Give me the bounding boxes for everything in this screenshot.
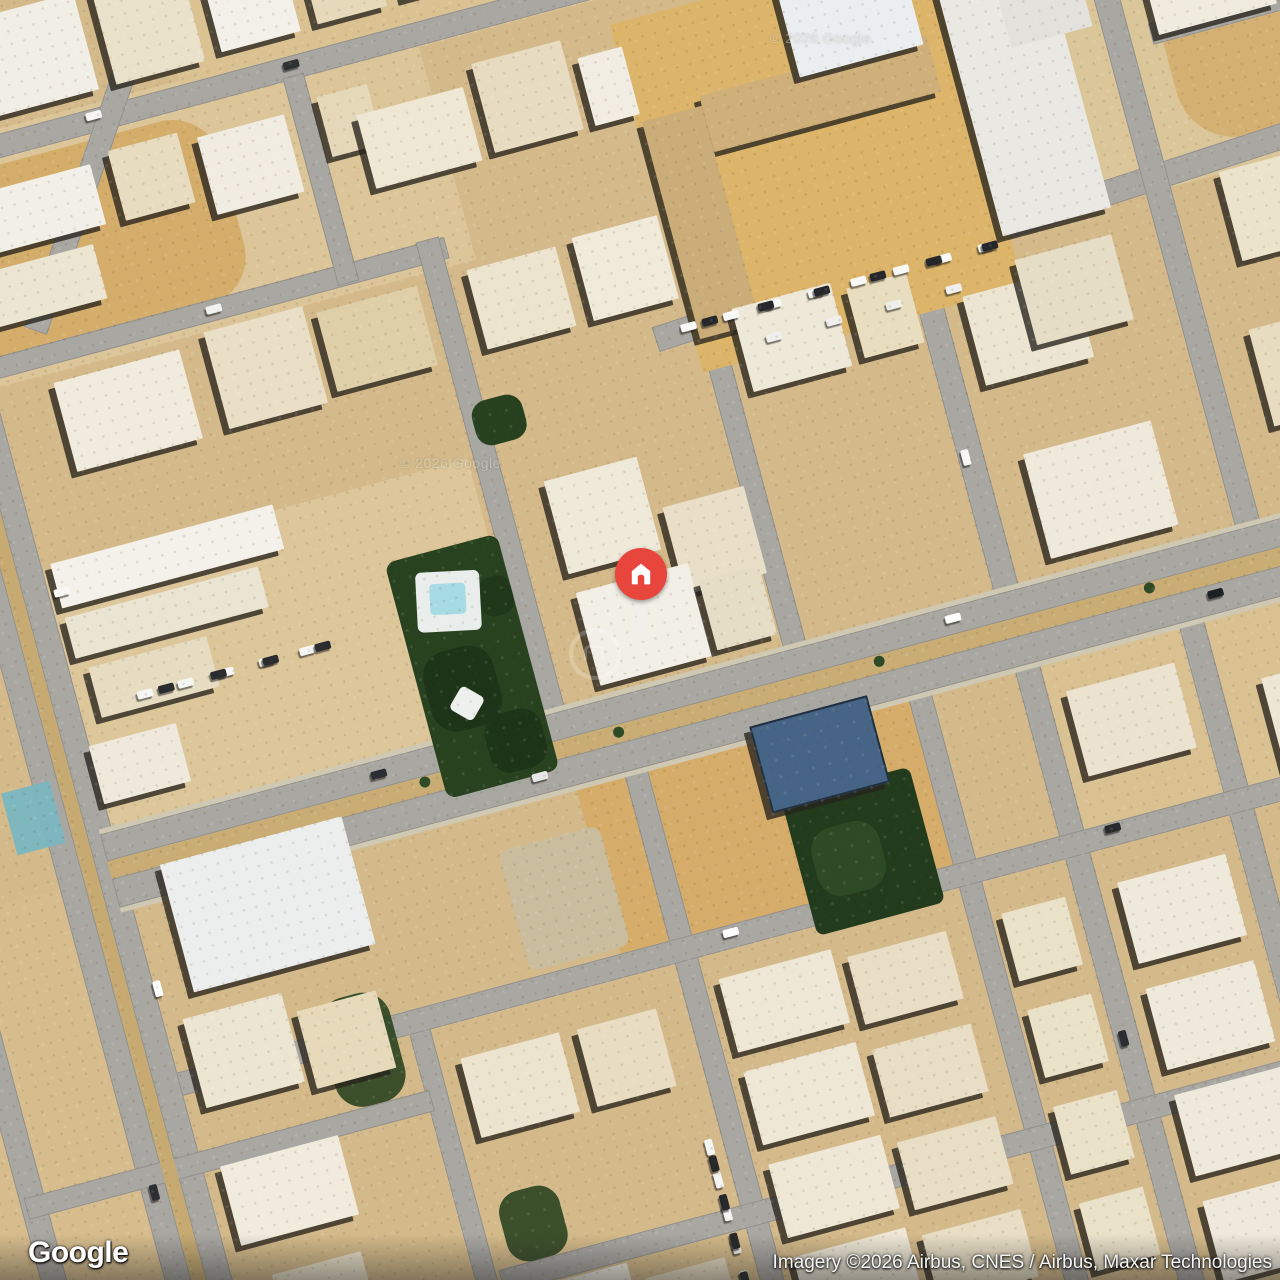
building [1023, 420, 1178, 558]
car [729, 1232, 741, 1250]
building [1001, 897, 1083, 982]
car [704, 1138, 716, 1156]
building [1174, 1066, 1280, 1176]
building [1027, 993, 1109, 1078]
building [1117, 854, 1247, 964]
building [1248, 301, 1280, 427]
building [897, 1116, 1014, 1210]
satellite-imagery-canvas[interactable] [0, 0, 1280, 1280]
imagery-attribution: Imagery ©2026 Airbus, CNES / Airbus, Max… [773, 1252, 1272, 1274]
car [718, 1194, 730, 1212]
building [183, 993, 305, 1108]
satellite-map-viewport[interactable]: © 2026 Google © 2026 Google Google Image… [0, 0, 1280, 1280]
building [460, 1032, 580, 1138]
building [316, 286, 438, 392]
map-pin[interactable] [615, 548, 667, 600]
building [572, 215, 679, 321]
car [739, 1271, 751, 1280]
building [847, 931, 964, 1025]
building [743, 1042, 875, 1145]
building [577, 1008, 677, 1106]
building [471, 40, 584, 153]
building [54, 349, 203, 472]
building [272, 1251, 385, 1280]
building [645, 1257, 745, 1280]
building [872, 1024, 989, 1118]
building [718, 949, 850, 1052]
building [768, 1135, 900, 1238]
building [466, 247, 576, 350]
building [0, 0, 99, 120]
car [708, 1155, 720, 1173]
building [1146, 960, 1276, 1070]
landmark [429, 582, 467, 615]
google-logo[interactable]: Google [28, 1236, 128, 1270]
home-icon [627, 560, 655, 588]
building [1014, 234, 1133, 345]
car [713, 1171, 725, 1189]
